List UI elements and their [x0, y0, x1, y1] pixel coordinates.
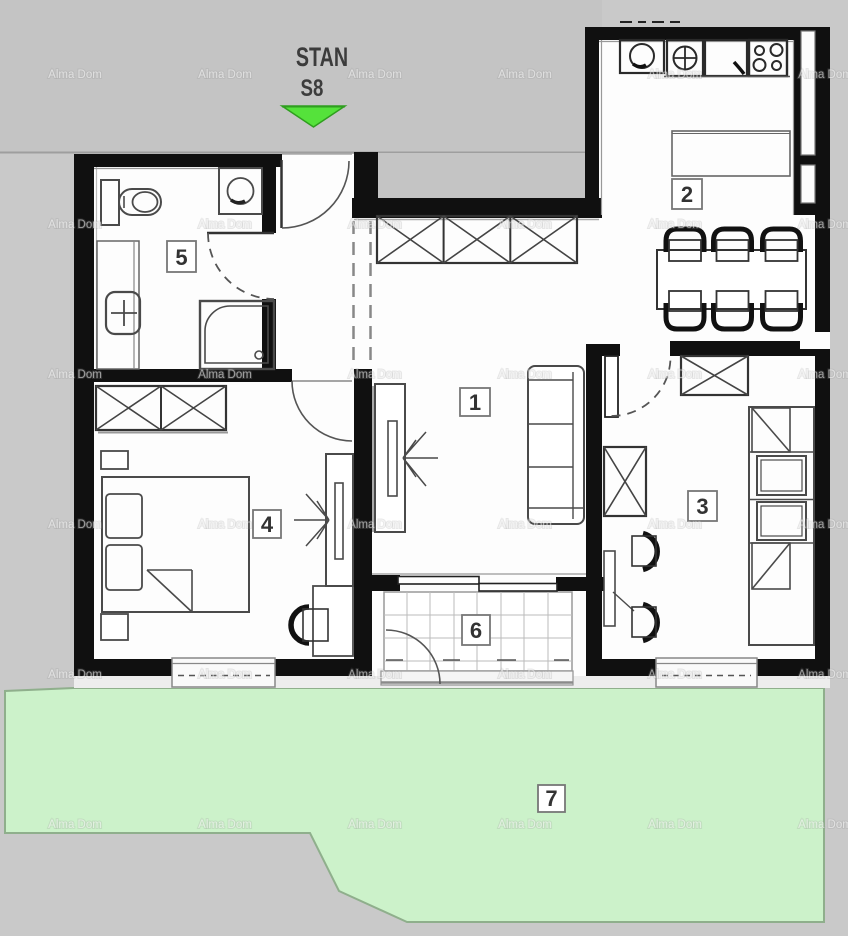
svg-text:4: 4 — [261, 512, 274, 537]
svg-text:Alma Dom: Alma Dom — [48, 519, 102, 531]
svg-text:Alma Dom: Alma Dom — [798, 819, 848, 831]
svg-text:7: 7 — [545, 786, 557, 811]
svg-text:Alma Dom: Alma Dom — [648, 69, 702, 81]
svg-text:Alma Dom: Alma Dom — [198, 69, 252, 81]
svg-text:Alma Dom: Alma Dom — [48, 819, 102, 831]
svg-text:Alma Dom: Alma Dom — [648, 519, 702, 531]
svg-text:Alma Dom: Alma Dom — [198, 219, 252, 231]
svg-text:Alma Dom: Alma Dom — [198, 669, 252, 681]
svg-text:Alma Dom: Alma Dom — [498, 219, 552, 231]
svg-text:Alma Dom: Alma Dom — [498, 669, 552, 681]
svg-text:Alma Dom: Alma Dom — [498, 369, 552, 381]
svg-text:S8: S8 — [301, 75, 324, 102]
svg-text:Alma Dom: Alma Dom — [498, 69, 552, 81]
svg-text:Alma Dom: Alma Dom — [798, 219, 848, 231]
svg-text:Alma Dom: Alma Dom — [798, 69, 848, 81]
svg-text:Alma Dom: Alma Dom — [348, 519, 402, 531]
svg-text:Alma Dom: Alma Dom — [648, 369, 702, 381]
svg-text:Alma Dom: Alma Dom — [48, 669, 102, 681]
svg-text:Alma Dom: Alma Dom — [198, 519, 252, 531]
svg-text:Alma Dom: Alma Dom — [798, 369, 848, 381]
svg-text:STAN: STAN — [296, 43, 348, 73]
svg-text:Alma Dom: Alma Dom — [648, 819, 702, 831]
svg-text:2: 2 — [681, 182, 693, 207]
svg-text:Alma Dom: Alma Dom — [648, 669, 702, 681]
svg-text:Alma Dom: Alma Dom — [798, 669, 848, 681]
svg-text:Alma Dom: Alma Dom — [48, 219, 102, 231]
svg-text:Alma Dom: Alma Dom — [798, 519, 848, 531]
svg-text:Alma Dom: Alma Dom — [348, 69, 402, 81]
svg-text:Alma Dom: Alma Dom — [348, 669, 402, 681]
svg-text:Alma Dom: Alma Dom — [348, 369, 402, 381]
svg-text:1: 1 — [469, 390, 481, 415]
svg-text:Alma Dom: Alma Dom — [198, 819, 252, 831]
svg-text:Alma Dom: Alma Dom — [48, 69, 102, 81]
svg-text:5: 5 — [175, 245, 187, 270]
svg-text:Alma Dom: Alma Dom — [198, 369, 252, 381]
svg-text:Alma Dom: Alma Dom — [348, 819, 402, 831]
svg-text:Alma Dom: Alma Dom — [498, 819, 552, 831]
svg-text:Alma Dom: Alma Dom — [648, 219, 702, 231]
svg-text:3: 3 — [696, 494, 708, 519]
svg-text:Alma Dom: Alma Dom — [48, 369, 102, 381]
svg-text:Alma Dom: Alma Dom — [498, 519, 552, 531]
svg-text:6: 6 — [470, 618, 482, 643]
svg-text:Alma Dom: Alma Dom — [348, 219, 402, 231]
